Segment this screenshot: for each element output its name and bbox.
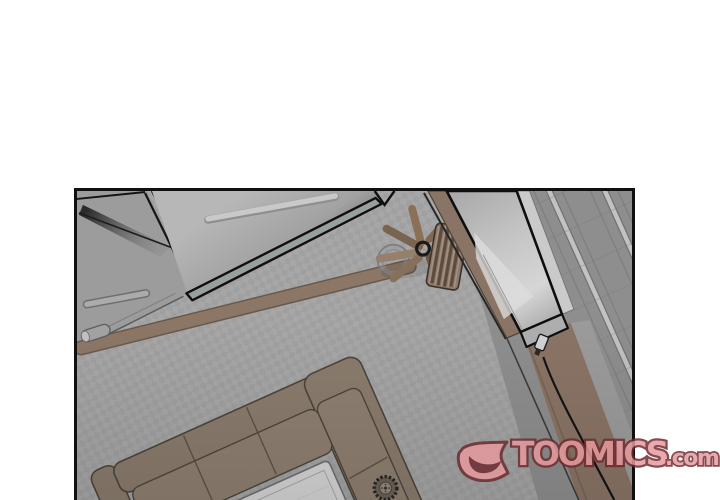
floor-vignette xyxy=(77,191,632,500)
comic-panel xyxy=(74,188,635,500)
comic-page: TOOMICS .com xyxy=(0,0,720,500)
room-scene xyxy=(77,191,632,500)
toomics-domain-text: .com xyxy=(665,448,718,470)
